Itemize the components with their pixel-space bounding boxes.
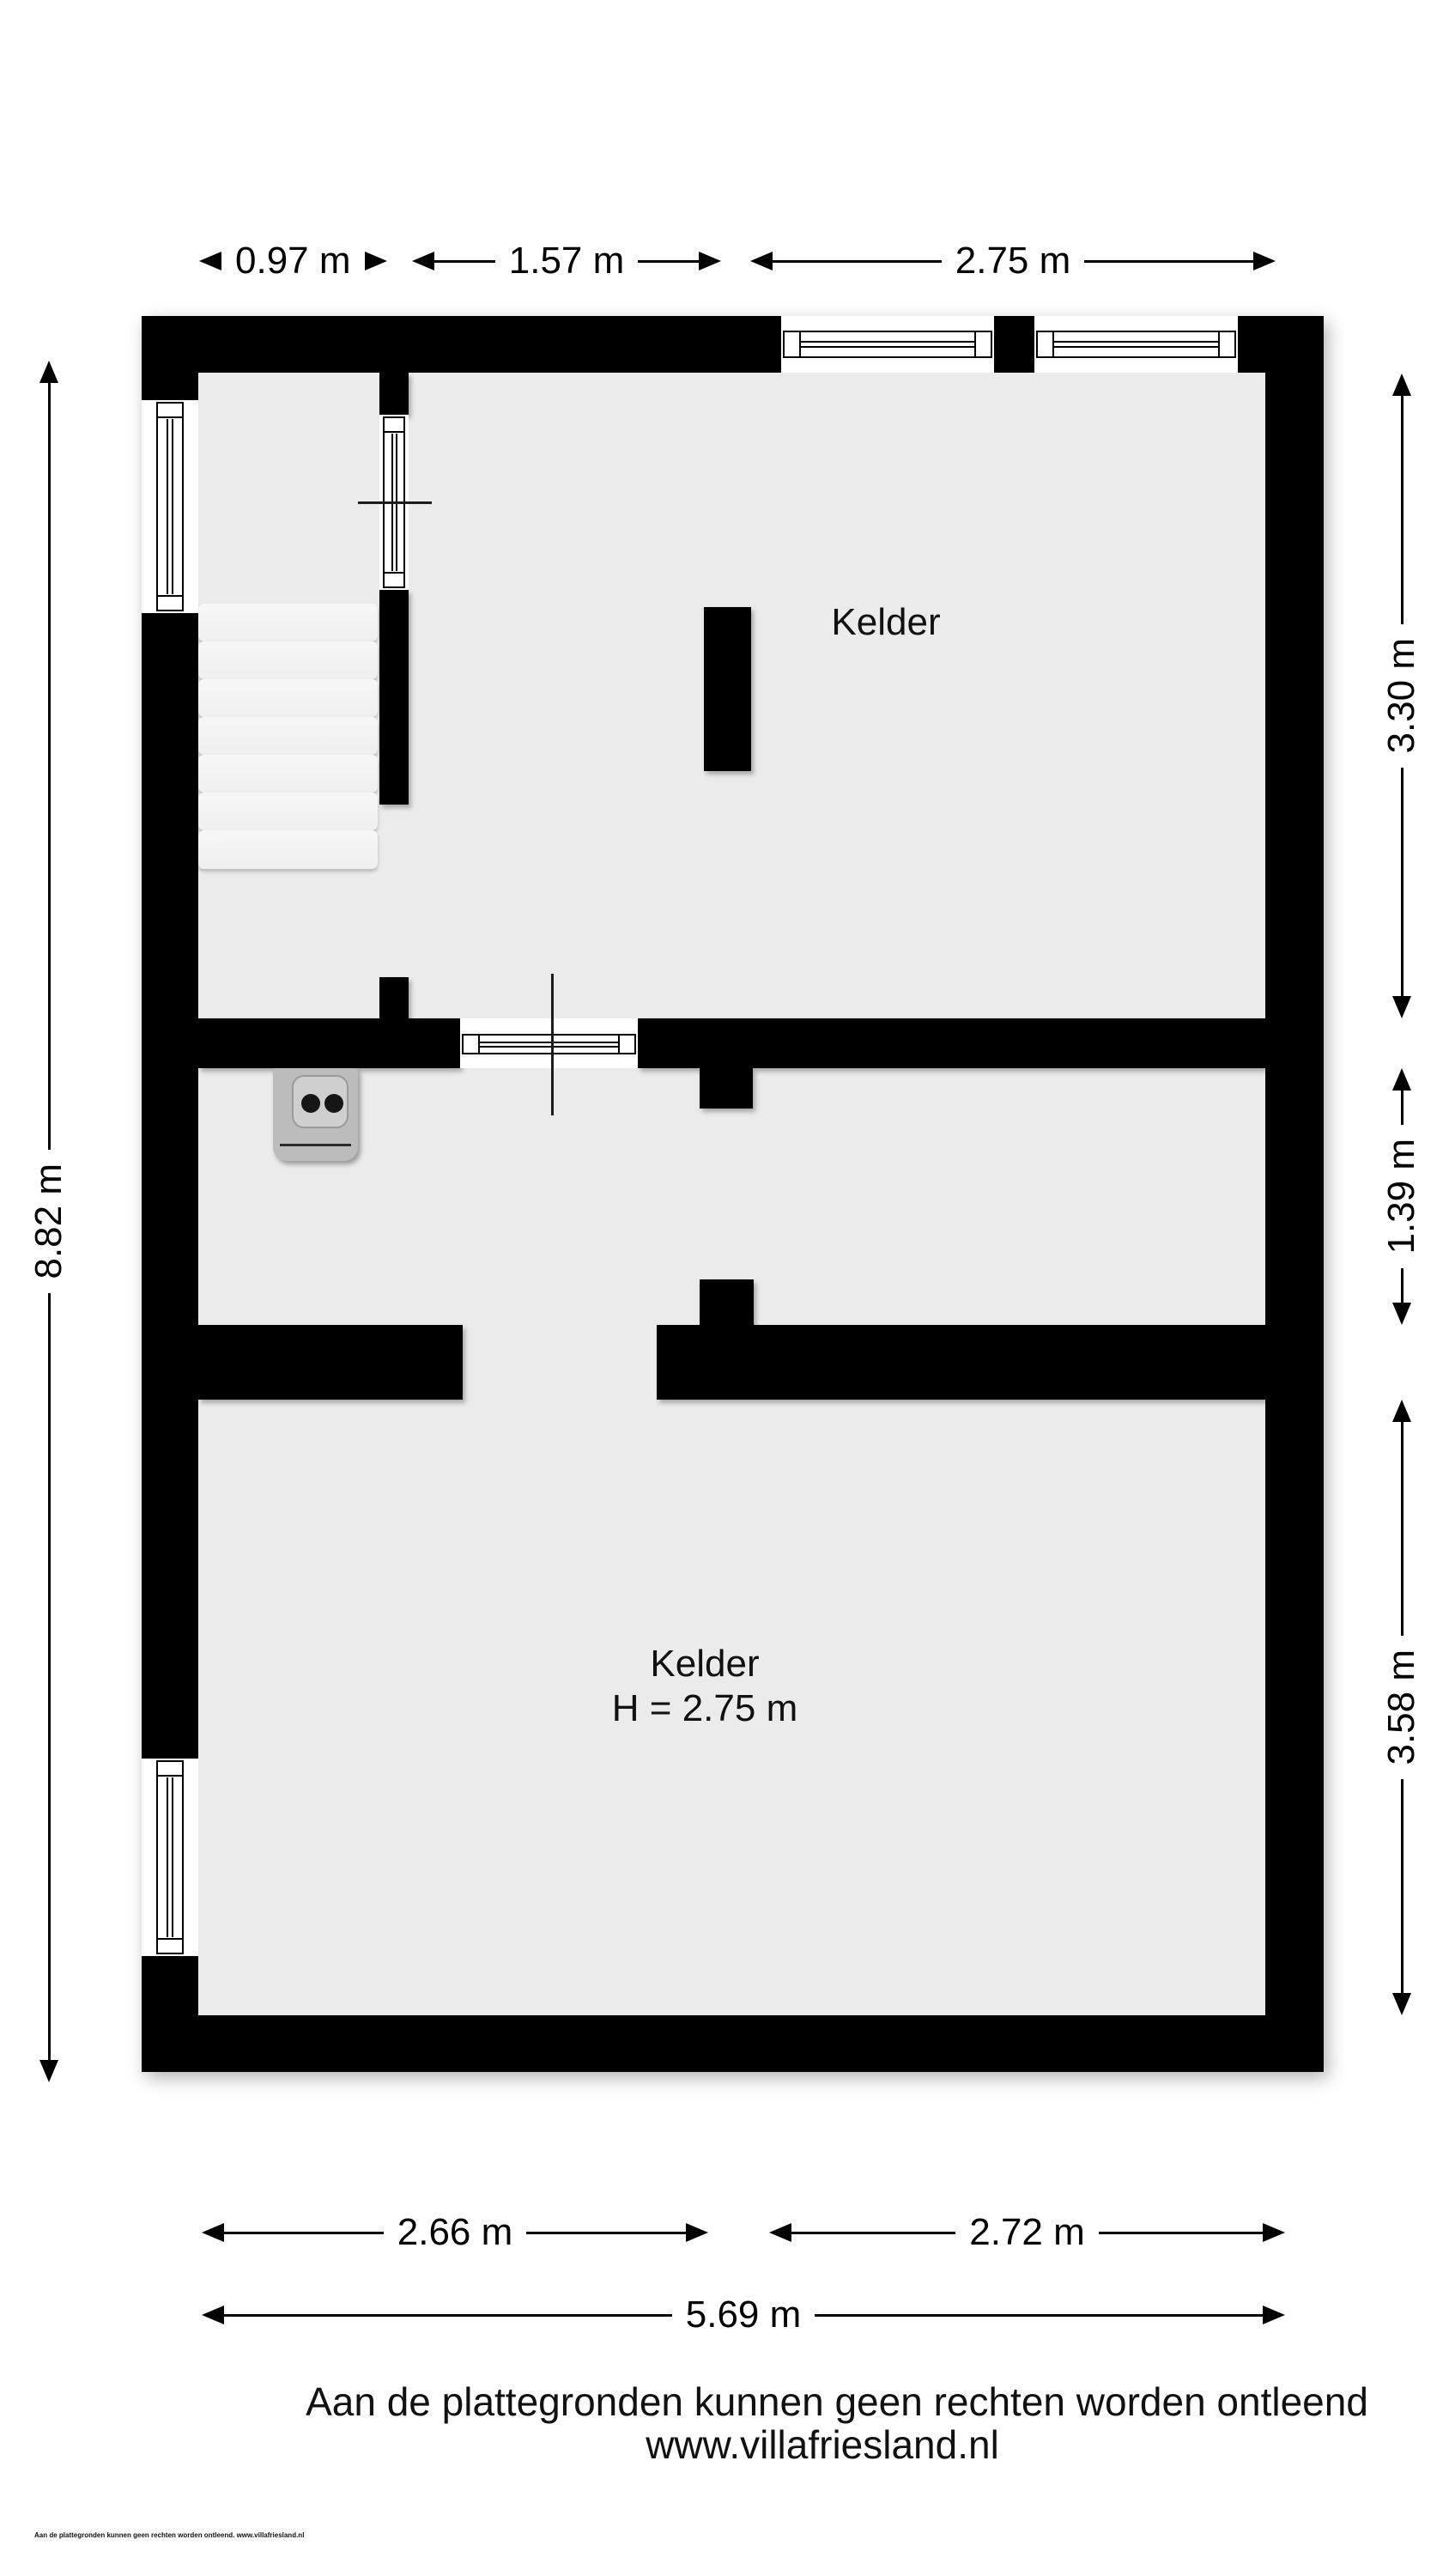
stair-tread bbox=[198, 793, 378, 830]
dim-top-157: 1.57 m bbox=[412, 240, 721, 282]
dim-label: 1.39 m bbox=[1380, 1125, 1423, 1268]
room-name: Kelder bbox=[612, 1642, 797, 1686]
dim-bottom-569: 5.69 m bbox=[202, 2294, 1285, 2336]
stair-tread bbox=[198, 679, 378, 717]
wall-a-left-segment bbox=[198, 1018, 460, 1068]
stair-tread bbox=[198, 641, 378, 679]
stair-tread-bottom bbox=[198, 830, 378, 869]
dim-bottom-272: 2.72 m bbox=[769, 2212, 1285, 2253]
footer-website: www.villafriesland.nl bbox=[646, 2421, 999, 2468]
dim-label: 2.75 m bbox=[942, 240, 1085, 283]
stair-partition-stub bbox=[379, 977, 409, 1018]
exterior-wall-bottom bbox=[142, 2015, 1324, 2072]
stair-tread bbox=[198, 604, 378, 641]
dim-top-097: 0.97 m bbox=[199, 240, 384, 282]
room-label-kelder-top: Kelder bbox=[831, 601, 940, 644]
dim-right-358: 3.58 m bbox=[1381, 1400, 1422, 2015]
dim-label: 8.82 m bbox=[27, 1150, 70, 1293]
window-top-2 bbox=[1034, 316, 1238, 373]
room-height: H = 2.75 m bbox=[612, 1686, 797, 1731]
wall-b-right-segment bbox=[657, 1325, 1265, 1400]
wall-a-right-segment bbox=[638, 1018, 1265, 1068]
glazed-door-wall-a bbox=[460, 1018, 638, 1068]
dim-label: 3.58 m bbox=[1380, 1636, 1423, 1779]
meter-line bbox=[280, 1144, 351, 1146]
dim-right-139: 1.39 m bbox=[1381, 1068, 1422, 1325]
door-swing-line-wall-a bbox=[551, 974, 554, 1115]
stair-tread bbox=[198, 755, 378, 793]
footer-disclaimer: Aan de plattegronden kunnen geen rechten… bbox=[306, 2379, 1368, 2425]
door-swing-line-stair bbox=[358, 501, 432, 504]
dim-label: 0.97 m bbox=[221, 240, 365, 283]
wall-b-left-segment bbox=[198, 1325, 463, 1400]
room-label-kelder-bottom: Kelder H = 2.75 m bbox=[612, 1642, 797, 1731]
dim-label: 2.66 m bbox=[384, 2211, 527, 2254]
stair-partition-lower bbox=[379, 590, 409, 805]
dim-right-330: 3.30 m bbox=[1381, 374, 1422, 1018]
meter-plate bbox=[292, 1075, 349, 1128]
dim-label: 2.72 m bbox=[955, 2211, 1099, 2254]
stair-partition-upper bbox=[379, 373, 409, 415]
pillar-top-room bbox=[704, 607, 751, 771]
stair-tread bbox=[198, 717, 378, 755]
window-left-lower bbox=[142, 1759, 198, 1956]
wall-b-stub-above bbox=[700, 1279, 754, 1325]
dim-label: 3.30 m bbox=[1380, 624, 1423, 768]
meter-appliance-icon bbox=[273, 1068, 358, 1161]
floorplan-page: Kelder Kelder H = 2.75 m 0.97 m 1.57 m 2… bbox=[0, 0, 1449, 2576]
dim-label: 5.69 m bbox=[672, 2293, 815, 2336]
exterior-wall-right bbox=[1265, 316, 1324, 2072]
window-left-upper bbox=[142, 400, 198, 613]
fine-print: Aan de plattegronden kunnen geen rechten… bbox=[34, 2531, 304, 2539]
dim-top-275: 2.75 m bbox=[750, 240, 1276, 282]
dim-left-882: 8.82 m bbox=[28, 361, 70, 2082]
dim-label: 1.57 m bbox=[495, 240, 639, 283]
floorplan-drawing bbox=[142, 316, 1324, 2072]
dim-bottom-266: 2.66 m bbox=[202, 2212, 708, 2253]
window-top-1 bbox=[781, 316, 994, 373]
wall-a-stub-below bbox=[700, 1068, 753, 1109]
meter-dot-icon bbox=[324, 1094, 343, 1113]
meter-dot-icon bbox=[301, 1094, 320, 1113]
